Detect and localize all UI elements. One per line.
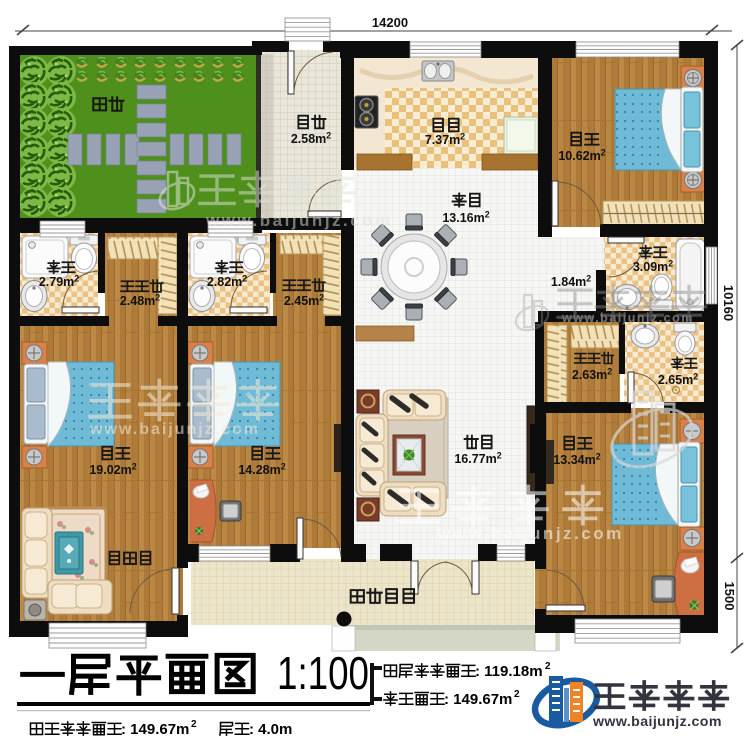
svg-text:10160: 10160	[721, 285, 736, 321]
svg-text:14.28m2: 14.28m2	[238, 462, 285, 477]
svg-text:19.02m2: 19.02m2	[89, 462, 136, 477]
svg-text:www.baijunjz.com: www.baijunjz.com	[436, 524, 624, 543]
svg-text:www.baijunjz.com: www.baijunjz.com	[89, 421, 260, 438]
svg-text:7.37m2: 7.37m2	[425, 132, 465, 147]
svg-text:2.45m2: 2.45m2	[284, 293, 324, 308]
svg-text:3.09m2: 3.09m2	[633, 259, 673, 274]
svg-text:: 119.18m: : 119.18m	[475, 663, 543, 680]
svg-text:13.16m2: 13.16m2	[442, 210, 489, 225]
svg-text:2: 2	[514, 689, 520, 700]
svg-text:www.baijunjz.com: www.baijunjz.com	[592, 714, 722, 730]
svg-text:: 149.67m: : 149.67m	[444, 691, 512, 708]
svg-text:2.63m2: 2.63m2	[572, 367, 612, 382]
svg-text:www.baijunjz.com: www.baijunjz.com	[561, 311, 694, 325]
svg-text:: 149.67m: : 149.67m	[121, 721, 189, 738]
svg-text:2: 2	[191, 719, 197, 730]
svg-text:1:100: 1:100	[277, 647, 369, 699]
svg-text:2.65m2: 2.65m2	[658, 372, 698, 387]
svg-text:1.84m2: 1.84m2	[551, 274, 591, 289]
svg-text:2.48m2: 2.48m2	[120, 293, 160, 308]
svg-text:: 4.0m: : 4.0m	[249, 721, 292, 738]
svg-text:10.62m2: 10.62m2	[558, 148, 605, 163]
svg-text:2.79m2: 2.79m2	[39, 274, 79, 289]
svg-text:2.58m2: 2.58m2	[291, 131, 331, 146]
svg-text:13.34m2: 13.34m2	[553, 452, 600, 467]
svg-text:2: 2	[545, 661, 551, 672]
svg-text:1500: 1500	[722, 582, 737, 611]
svg-text:16.77m2: 16.77m2	[454, 451, 501, 466]
svg-text:2.82m2: 2.82m2	[207, 274, 247, 289]
svg-text:14200: 14200	[372, 15, 408, 30]
svg-text:www.baijunjz.com: www.baijunjz.com	[205, 211, 393, 230]
